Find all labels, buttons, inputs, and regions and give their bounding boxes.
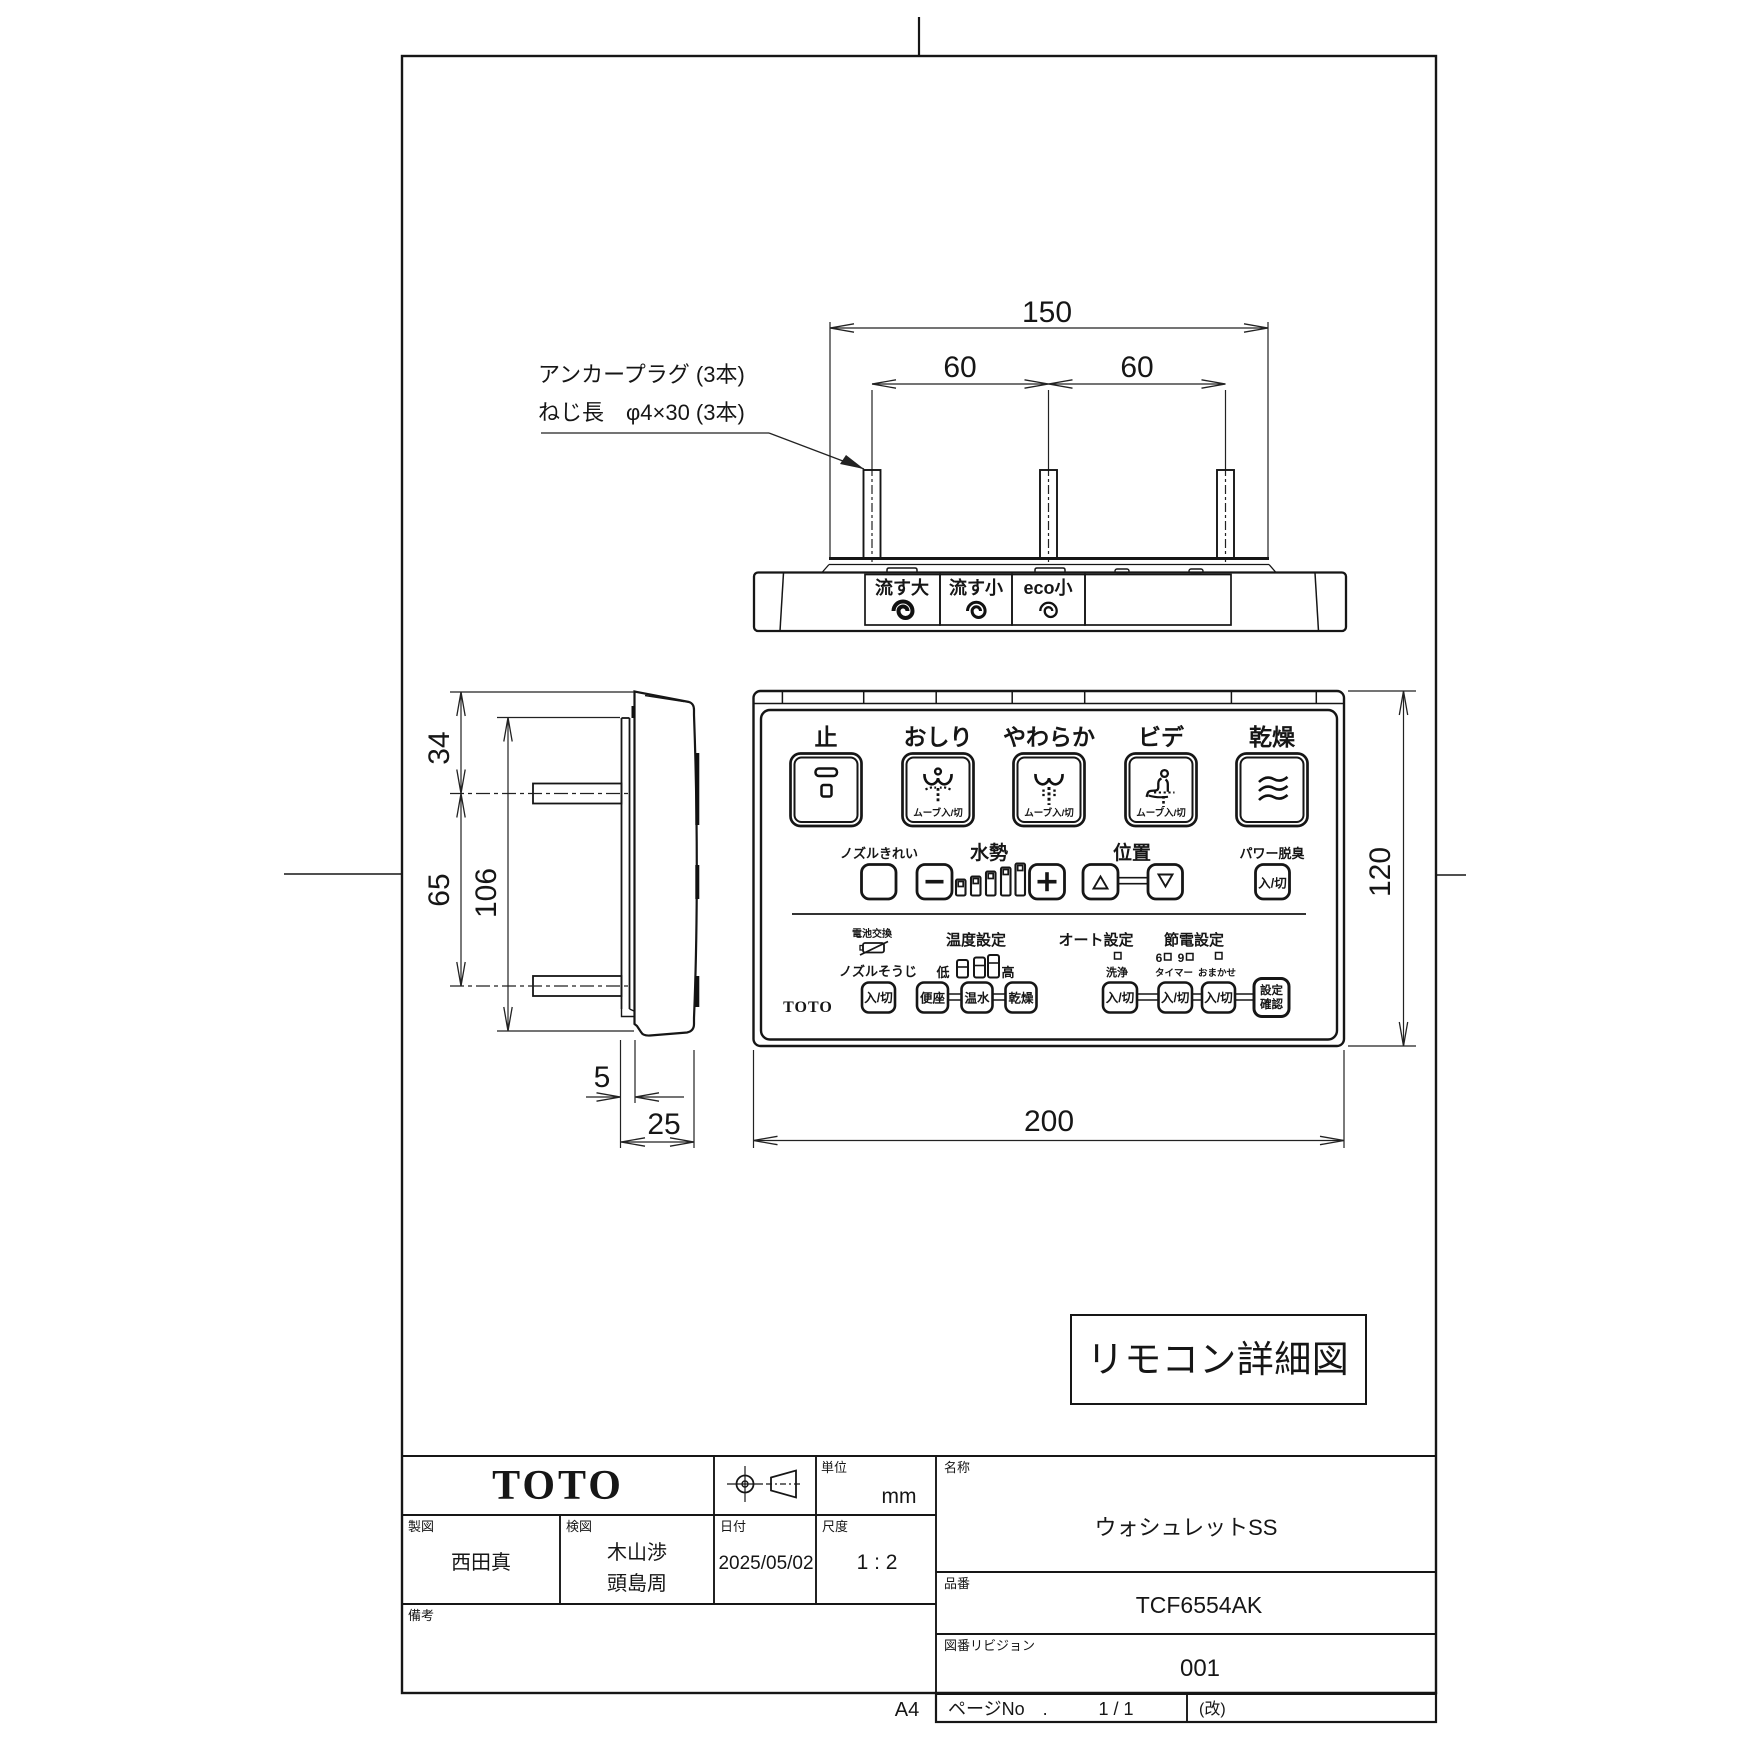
svg-text:低: 低 xyxy=(935,965,949,980)
svg-text:A4: A4 xyxy=(895,1699,919,1721)
svg-text:ねじ長 φ4×30 (3本): ねじ長 φ4×30 (3本) xyxy=(538,400,745,425)
svg-text:9: 9 xyxy=(1178,951,1185,965)
svg-text:流す小: 流す小 xyxy=(949,577,1003,598)
svg-text:5: 5 xyxy=(594,1061,611,1094)
svg-text:日付: 日付 xyxy=(720,1519,746,1534)
svg-text:アンカープラグ (3本): アンカープラグ (3本) xyxy=(538,362,745,387)
svg-text:洗浄: 洗浄 xyxy=(1106,965,1128,979)
svg-text:節電設定: 節電設定 xyxy=(1164,931,1224,949)
svg-text:200: 200 xyxy=(1024,1105,1074,1138)
svg-text:位置: 位置 xyxy=(1113,841,1151,864)
svg-text:ウォシュレットSS: ウォシュレットSS xyxy=(1095,1515,1278,1540)
svg-text:止: 止 xyxy=(815,724,838,750)
svg-text:温水: 温水 xyxy=(964,991,990,1006)
svg-text:ムーブ入/切: ムーブ入/切 xyxy=(913,807,963,819)
svg-text:やわらか: やわらか xyxy=(1003,724,1095,750)
svg-text:尺度: 尺度 xyxy=(822,1519,848,1534)
svg-text:西田真: 西田真 xyxy=(451,1551,511,1574)
svg-text:eco小: eco小 xyxy=(1023,578,1072,598)
svg-text:入/切: 入/切 xyxy=(1258,877,1286,891)
svg-text:106: 106 xyxy=(470,868,503,918)
svg-text:2025/05/02: 2025/05/02 xyxy=(718,1553,813,1574)
svg-text:おしり: おしり xyxy=(904,724,973,750)
svg-text:TCF6554AK: TCF6554AK xyxy=(1136,1592,1263,1618)
svg-text:TOTO: TOTO xyxy=(783,999,833,1016)
svg-text:入/切: 入/切 xyxy=(864,991,892,1005)
svg-text:(改): (改) xyxy=(1199,1700,1226,1718)
svg-text:ビデ: ビデ xyxy=(1138,724,1185,750)
svg-text:1 : 2: 1 : 2 xyxy=(857,1551,898,1574)
svg-text:ページNo .: ページNo . xyxy=(948,1699,1048,1719)
svg-text:1 / 1: 1 / 1 xyxy=(1098,1699,1133,1719)
svg-text:乾燥: 乾燥 xyxy=(1249,724,1296,750)
svg-text:入/切: 入/切 xyxy=(1204,991,1232,1005)
svg-text:備考: 備考 xyxy=(408,1608,434,1623)
svg-text:名称: 名称 xyxy=(944,1460,970,1475)
svg-text:60: 60 xyxy=(1120,351,1153,384)
svg-text:乾燥: 乾燥 xyxy=(1008,991,1034,1006)
svg-text:電池交換: 電池交換 xyxy=(852,927,893,940)
svg-text:確認: 確認 xyxy=(1260,997,1283,1011)
svg-text:34: 34 xyxy=(423,731,456,764)
svg-text:頭島周: 頭島周 xyxy=(607,1572,667,1595)
svg-text:入/切: 入/切 xyxy=(1161,991,1189,1005)
svg-text:温度設定: 温度設定 xyxy=(946,931,1006,949)
svg-text:木山渉: 木山渉 xyxy=(607,1541,667,1564)
svg-text:製図: 製図 xyxy=(408,1519,434,1534)
svg-text:150: 150 xyxy=(1022,296,1072,329)
svg-text:パワー脱臭: パワー脱臭 xyxy=(1239,846,1304,861)
svg-text:便座: 便座 xyxy=(920,991,946,1006)
svg-text:65: 65 xyxy=(423,873,456,906)
svg-text:設定: 設定 xyxy=(1260,983,1283,997)
svg-text:入/切: 入/切 xyxy=(1106,991,1134,1005)
svg-text:ノズルそうじ: ノズルそうじ xyxy=(839,964,917,979)
svg-text:ムーブ入/切: ムーブ入/切 xyxy=(1136,807,1186,819)
svg-text:ノズルきれい: ノズルきれい xyxy=(840,846,918,861)
svg-text:流す大: 流す大 xyxy=(875,577,929,598)
svg-text:リモコン詳細図: リモコン詳細図 xyxy=(1087,1339,1350,1380)
svg-text:オート設定: オート設定 xyxy=(1058,931,1133,949)
svg-text:単位: 単位 xyxy=(821,1460,847,1475)
svg-text:mm: mm xyxy=(882,1485,917,1508)
svg-text:水勢: 水勢 xyxy=(970,841,1008,864)
svg-text:TOTO: TOTO xyxy=(492,1463,624,1509)
svg-text:おまかせ: おまかせ xyxy=(1198,967,1236,979)
svg-text:図番リビジョン: 図番リビジョン xyxy=(944,1638,1035,1653)
svg-text:高: 高 xyxy=(1001,965,1014,980)
svg-text:60: 60 xyxy=(943,351,976,384)
svg-text:120: 120 xyxy=(1364,847,1397,897)
svg-text:タイマー: タイマー xyxy=(1155,967,1193,979)
svg-text:6: 6 xyxy=(1156,951,1163,965)
svg-text:001: 001 xyxy=(1180,1655,1220,1682)
svg-text:25: 25 xyxy=(647,1108,680,1141)
svg-text:品番: 品番 xyxy=(944,1576,970,1591)
svg-text:ムーブ入/切: ムーブ入/切 xyxy=(1024,807,1074,819)
svg-text:検図: 検図 xyxy=(566,1519,592,1534)
